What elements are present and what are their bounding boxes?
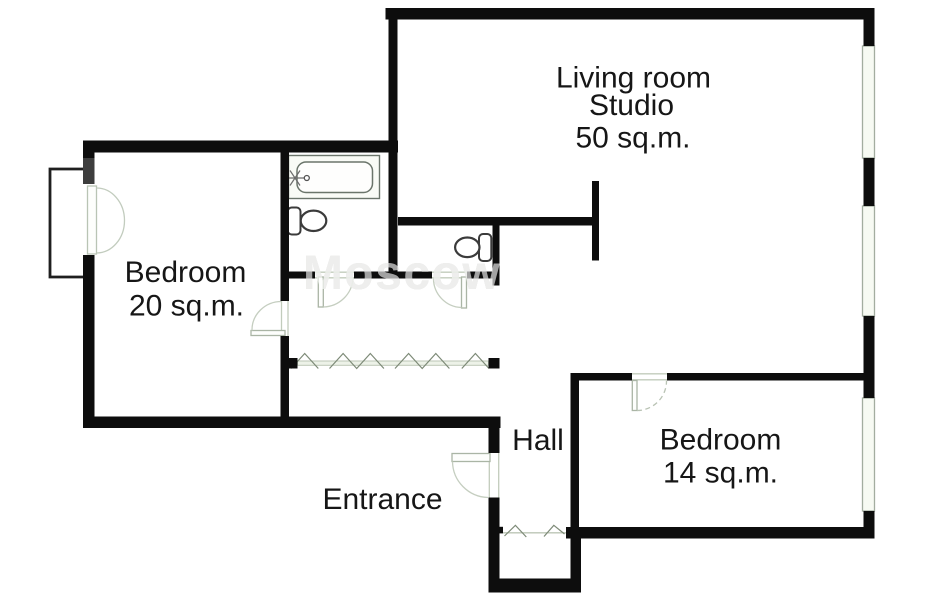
- svg-text:Studio: Studio: [589, 89, 674, 122]
- svg-text:14 sq.m.: 14 sq.m.: [663, 457, 778, 490]
- svg-text:Moscow: Moscow: [303, 247, 501, 300]
- svg-text:Bedroom: Bedroom: [660, 424, 782, 457]
- svg-text:Bedroom: Bedroom: [125, 256, 247, 289]
- svg-text:20 sq.m.: 20 sq.m.: [129, 290, 244, 323]
- svg-text:Hall: Hall: [512, 424, 564, 457]
- svg-text:50 sq.m.: 50 sq.m.: [575, 122, 690, 155]
- svg-text:Entrance: Entrance: [322, 483, 442, 516]
